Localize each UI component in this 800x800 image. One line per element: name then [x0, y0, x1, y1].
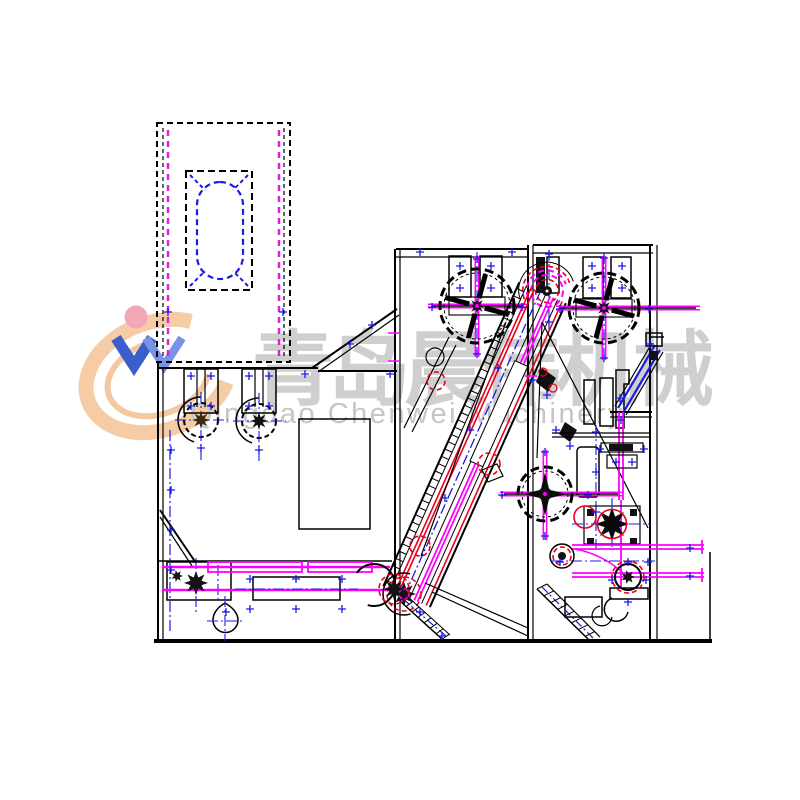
condenser-drum: [186, 171, 252, 290]
logo-dot-icon: [125, 306, 148, 329]
inspection-panel: [299, 419, 370, 529]
stripper-drum: [519, 262, 574, 307]
cad-drawing-canvas: 青岛晨伟机械 Qingdao Chenwei Machinery: [0, 0, 800, 800]
tension-weight: [207, 596, 243, 641]
